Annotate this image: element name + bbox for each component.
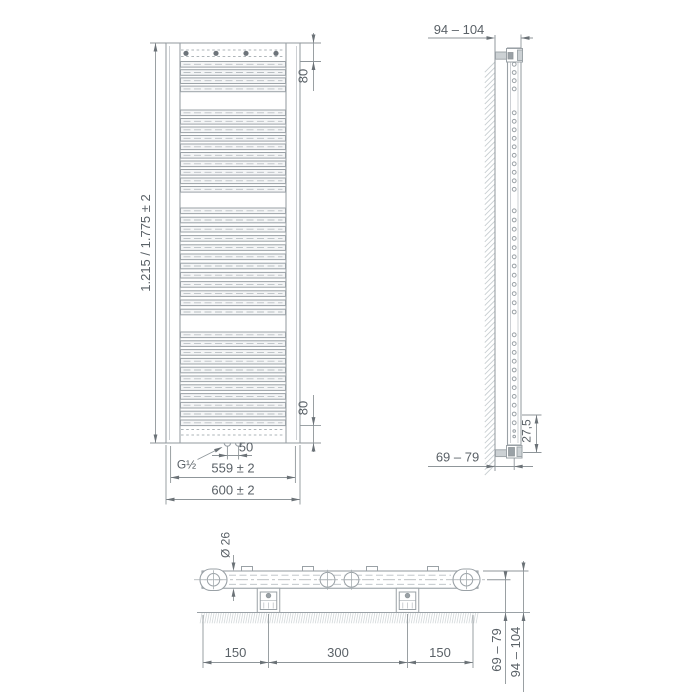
label-height: 1.215 / 1.775 ± 2 bbox=[138, 194, 153, 292]
top-wall-brackets bbox=[257, 588, 419, 612]
side-top-bracket bbox=[496, 49, 523, 63]
top-view: Ø 26 150 300 150 69 – 79 94 – 104 bbox=[194, 532, 530, 692]
front-body-outline bbox=[166, 43, 300, 443]
side-bottom-valve bbox=[496, 446, 523, 459]
dim-bottom-connection-offset: 27,5 bbox=[520, 415, 542, 453]
side-view: 94 – 104 27,5 69 – 79 bbox=[428, 22, 542, 475]
label-bottom-offset-80: 80 bbox=[295, 401, 310, 415]
label-thread-g12: G½ bbox=[177, 458, 196, 472]
label-depth-69-79-top: 69 – 79 bbox=[489, 628, 504, 671]
technical-drawing-canvas: 1.215 / 1.775 ± 2 80 80 50 G½ 559 ± 2 bbox=[0, 0, 700, 700]
bracket-left bbox=[257, 588, 280, 612]
label-width-600: 600 ± 2 bbox=[211, 483, 254, 498]
label-bracket-300: 300 bbox=[327, 645, 349, 660]
front-view: 1.215 / 1.775 ± 2 80 80 50 G½ 559 ± 2 bbox=[138, 33, 321, 505]
label-width-559: 559 ± 2 bbox=[211, 461, 254, 476]
label-depth-94-104-top: 94 – 104 bbox=[508, 627, 523, 678]
label-depth-69-79-side: 69 – 79 bbox=[436, 450, 479, 465]
label-depth-94-104-side: 94 – 104 bbox=[434, 22, 485, 37]
bracket-right bbox=[396, 588, 419, 612]
label-bracket-150-right: 150 bbox=[429, 645, 451, 660]
top-wall-hatching bbox=[200, 613, 478, 623]
label-connection-spacing-50: 50 bbox=[239, 440, 253, 455]
label-offset-27-5: 27,5 bbox=[520, 419, 534, 443]
dim-height: 1.215 / 1.775 ± 2 bbox=[138, 43, 166, 443]
label-bracket-150-left: 150 bbox=[225, 645, 247, 660]
radiator-dimension-drawing: 1.215 / 1.775 ± 2 80 80 50 G½ 559 ± 2 bbox=[0, 0, 700, 700]
side-wall-hatching bbox=[485, 62, 495, 475]
dim-depth-overall-side: 94 – 104 bbox=[428, 22, 533, 48]
label-tube-diameter-26: Ø 26 bbox=[219, 532, 233, 558]
dim-tube-diameter: Ø 26 bbox=[219, 532, 234, 601]
label-top-offset-80: 80 bbox=[295, 69, 310, 83]
